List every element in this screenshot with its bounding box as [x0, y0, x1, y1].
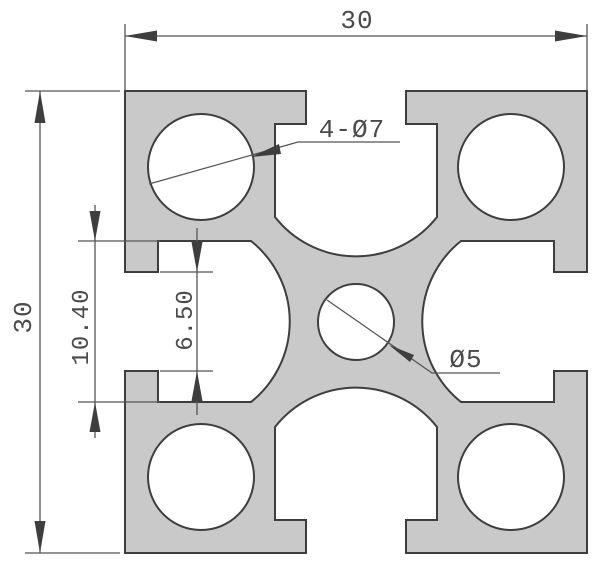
dim-cavity-value: 10.40	[69, 288, 96, 365]
dimension-overall-height: 30	[9, 91, 120, 553]
label-corner-holes: 4-Ø7	[319, 115, 385, 145]
arrowhead-left	[125, 31, 157, 42]
arrowhead-cavity-top	[90, 211, 101, 241]
dim-top-value: 30	[340, 6, 373, 36]
arrowhead-opening-top	[192, 242, 203, 272]
arrowhead-cavity-bottom	[90, 402, 101, 432]
arrowhead-right	[555, 31, 587, 42]
profile-drawing: 30 30 10.40 6.50 4-Ø7	[0, 0, 600, 572]
dim-left-value: 30	[9, 300, 39, 333]
drawing-canvas: 30 30 10.40 6.50 4-Ø7	[0, 0, 600, 572]
dim-opening-value: 6.50	[173, 289, 200, 351]
arrowhead-down	[35, 521, 46, 553]
arrowhead-opening-bottom	[192, 371, 203, 401]
dimension-slot-opening-width: 6.50	[160, 228, 213, 415]
dimension-overall-width: 30	[125, 6, 587, 90]
arrowhead-up	[35, 91, 46, 123]
label-center-hole: Ø5	[449, 345, 482, 375]
